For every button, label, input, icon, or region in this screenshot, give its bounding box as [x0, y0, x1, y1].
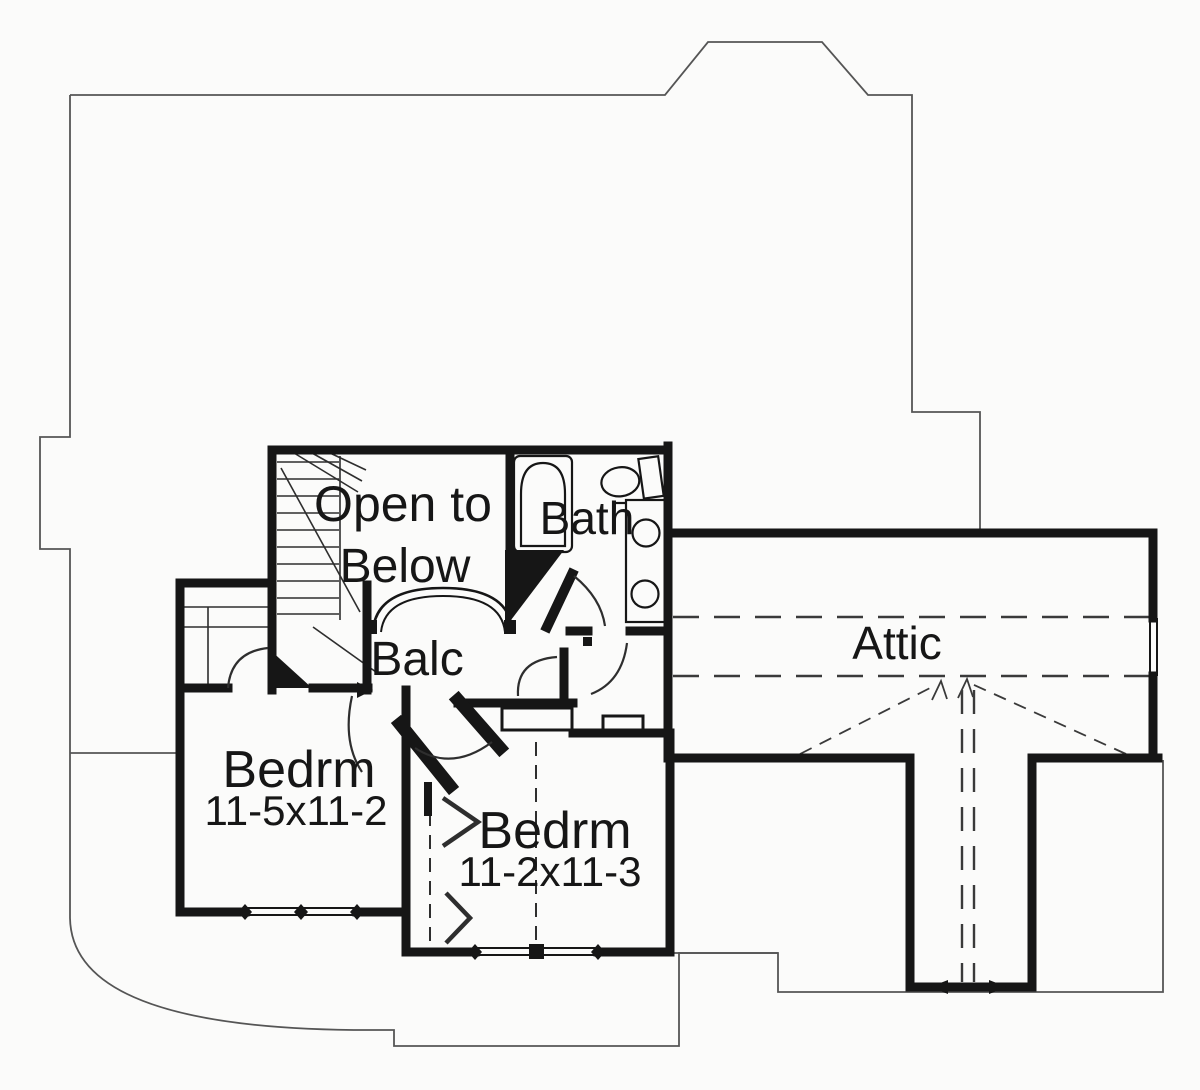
balcony-railing — [373, 588, 512, 632]
bedroom2-wall-niche — [603, 716, 643, 730]
attic-arrowhead-left — [932, 681, 947, 700]
window-tick — [468, 944, 482, 960]
floor-plan: Open to Below Bath Balc Attic Bedrm 11-5… — [0, 0, 1200, 1090]
railing-arch-inner — [381, 596, 505, 632]
label-bath: Bath — [540, 492, 635, 544]
window-tick — [238, 904, 252, 920]
arch-end-cap-right — [504, 620, 516, 634]
label-bedroom2-dims: 11-2x11-3 — [459, 848, 642, 895]
closet-bedroom1-shelves — [184, 607, 268, 686]
sink-upper-icon — [633, 520, 660, 547]
label-open-to-below-1: Open to — [314, 476, 492, 532]
attic-diagonal-dash-left — [800, 686, 934, 754]
door-arc-hall-stub — [518, 657, 557, 696]
bifold-chevron-lower — [446, 893, 470, 943]
built-ins — [502, 708, 643, 730]
roof-outline — [40, 42, 1163, 1046]
roof-outline-top — [70, 42, 980, 533]
closet-shelf-line — [184, 607, 268, 627]
toilet-tank — [638, 456, 663, 498]
attic-arrowhead-right — [958, 679, 973, 698]
arch-end-cap-left — [365, 620, 377, 634]
attic-diagonal-dash-right — [972, 684, 1126, 754]
window-tick — [591, 944, 605, 960]
sink-lower-icon — [632, 581, 659, 608]
bifold-chevron-upper — [443, 798, 478, 846]
attic-opening-lines — [1150, 618, 1157, 676]
window-tick — [350, 904, 364, 920]
hall-cabinet — [502, 708, 572, 730]
door-leaf-bath — [547, 574, 572, 627]
label-bedroom1-dims: 11-5x11-2 — [205, 787, 388, 834]
label-open-to-below-2: Below — [340, 540, 471, 593]
attic-wall-opening — [1150, 618, 1157, 676]
window-tick — [294, 904, 308, 920]
bath-door-hinge — [583, 637, 592, 646]
label-attic: Attic — [852, 617, 941, 669]
roof-outline-left-bottom — [40, 95, 1163, 1046]
door-arc-bath-inner — [574, 576, 605, 626]
door-arc-closet1 — [228, 648, 268, 688]
door-arc-bath-outer — [591, 643, 627, 694]
window-tick — [529, 944, 544, 959]
floor-plan-drawing: Open to Below Bath Balc Attic Bedrm 11-5… — [0, 0, 1200, 1090]
label-balcony: Balc — [370, 633, 463, 686]
